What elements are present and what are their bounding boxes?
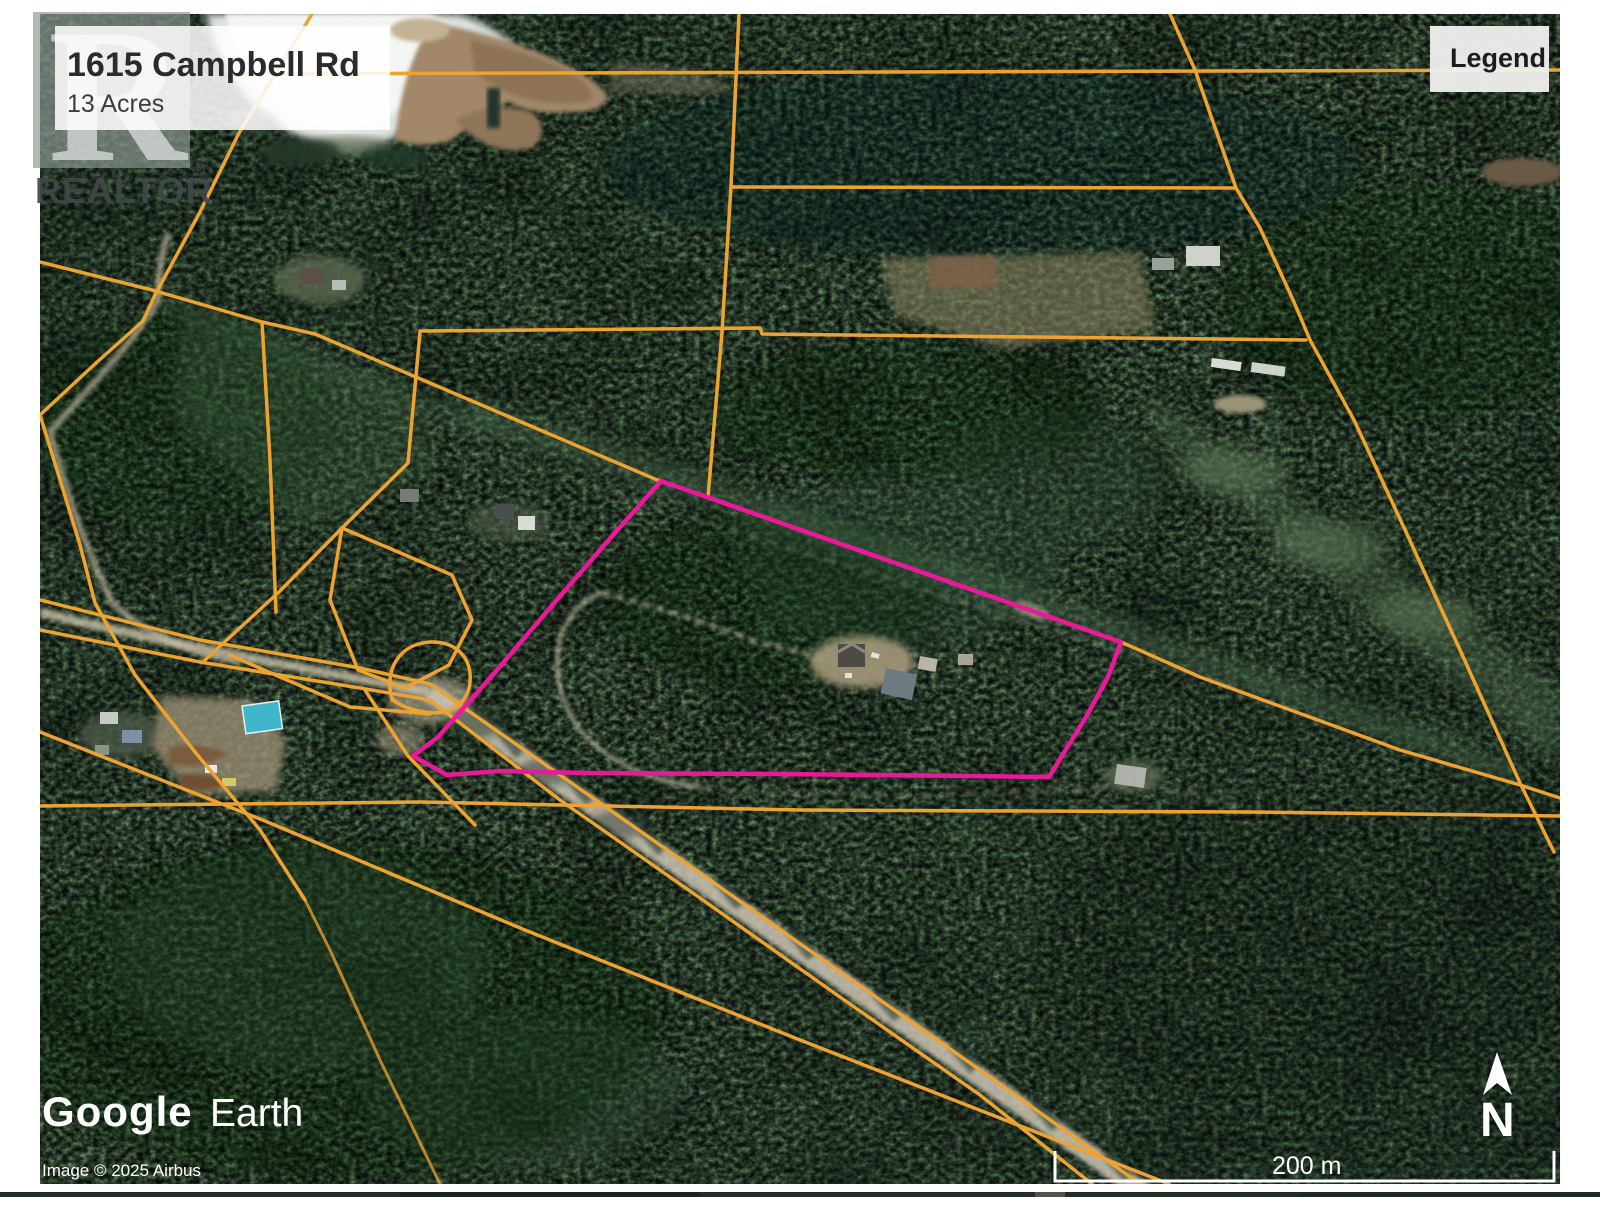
svg-text:Legend: Legend	[1450, 43, 1546, 73]
svg-text:®: ®	[193, 162, 205, 179]
svg-text:N: N	[1480, 1094, 1515, 1147]
svg-text:200 m: 200 m	[1272, 1152, 1341, 1180]
svg-text:13 Acres: 13 Acres	[67, 90, 164, 118]
svg-text:Google: Google	[42, 1088, 193, 1135]
svg-text:1615 Campbell Rd: 1615 Campbell Rd	[67, 46, 360, 84]
svg-text:Earth: Earth	[210, 1092, 303, 1135]
svg-text:Image © 2025 Airbus: Image © 2025 Airbus	[42, 1161, 201, 1180]
svg-text:REALTOR: REALTOR	[35, 170, 213, 211]
